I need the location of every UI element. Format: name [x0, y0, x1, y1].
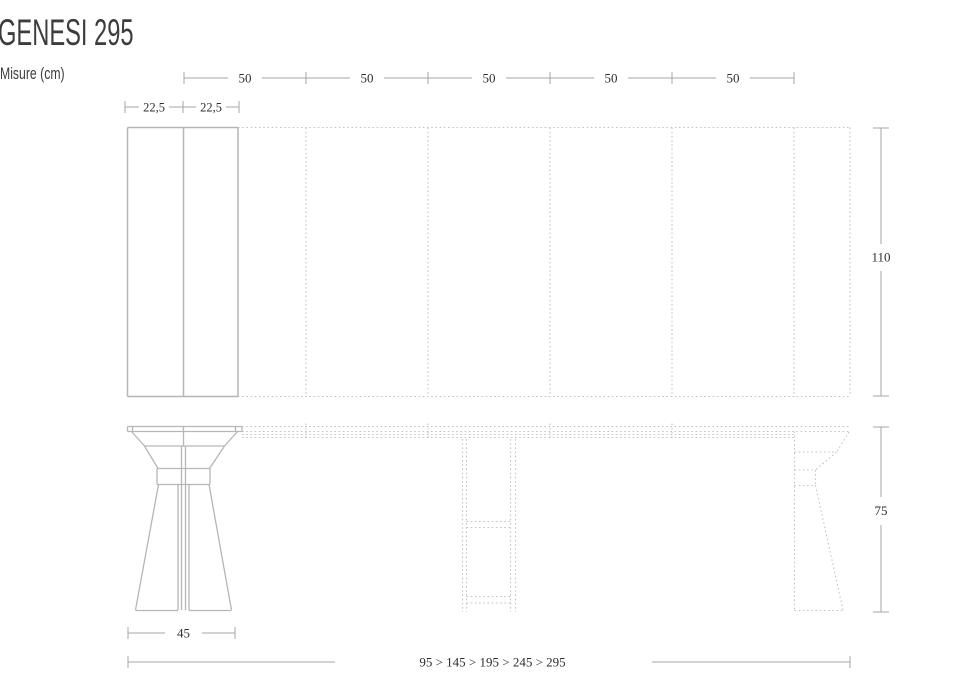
drawing-canvas: 50 50 50 50 50 22,5 22,5 110 75 45 95 > …: [0, 0, 970, 685]
dim-label-extension-sequence: 95 > 145 > 195 > 245 > 295: [419, 655, 565, 670]
dim-label-50-2: 50: [361, 71, 374, 86]
elevation-right-leg-dashed: [795, 432, 850, 611]
dim-label-height-75: 75: [875, 503, 888, 518]
plan-closed-top-outline: [128, 128, 239, 397]
dim-label-depth-110: 110: [871, 250, 890, 265]
dim-label-50-5: 50: [727, 71, 740, 86]
dim-label-leaf-left: 22,5: [143, 101, 165, 115]
dimension-lines: [125, 72, 889, 668]
technical-drawing-page: GENESI 295 Misure (cm) 50 50: [0, 0, 970, 685]
plan-extension-panels-dashed: [238, 128, 850, 397]
dim-label-50-1: 50: [239, 71, 252, 86]
elevation-middle-support-dashed: [463, 439, 516, 612]
elevation-pedestal-left: [132, 432, 238, 611]
dim-label-leaf-right: 22,5: [200, 101, 222, 115]
elevation-view: [128, 424, 850, 613]
dim-label-base-45: 45: [177, 626, 190, 641]
elevation-tabletop-extension-dashed: [242, 424, 849, 441]
elevation-tabletop: [128, 427, 243, 447]
dim-label-50-3: 50: [483, 71, 496, 86]
dimension-labels: 50 50 50 50 50 22,5 22,5 110 75 45 95 > …: [143, 71, 890, 670]
dim-line-height-75: [873, 427, 889, 612]
dim-label-50-4: 50: [605, 71, 618, 86]
plan-view: [128, 128, 851, 397]
